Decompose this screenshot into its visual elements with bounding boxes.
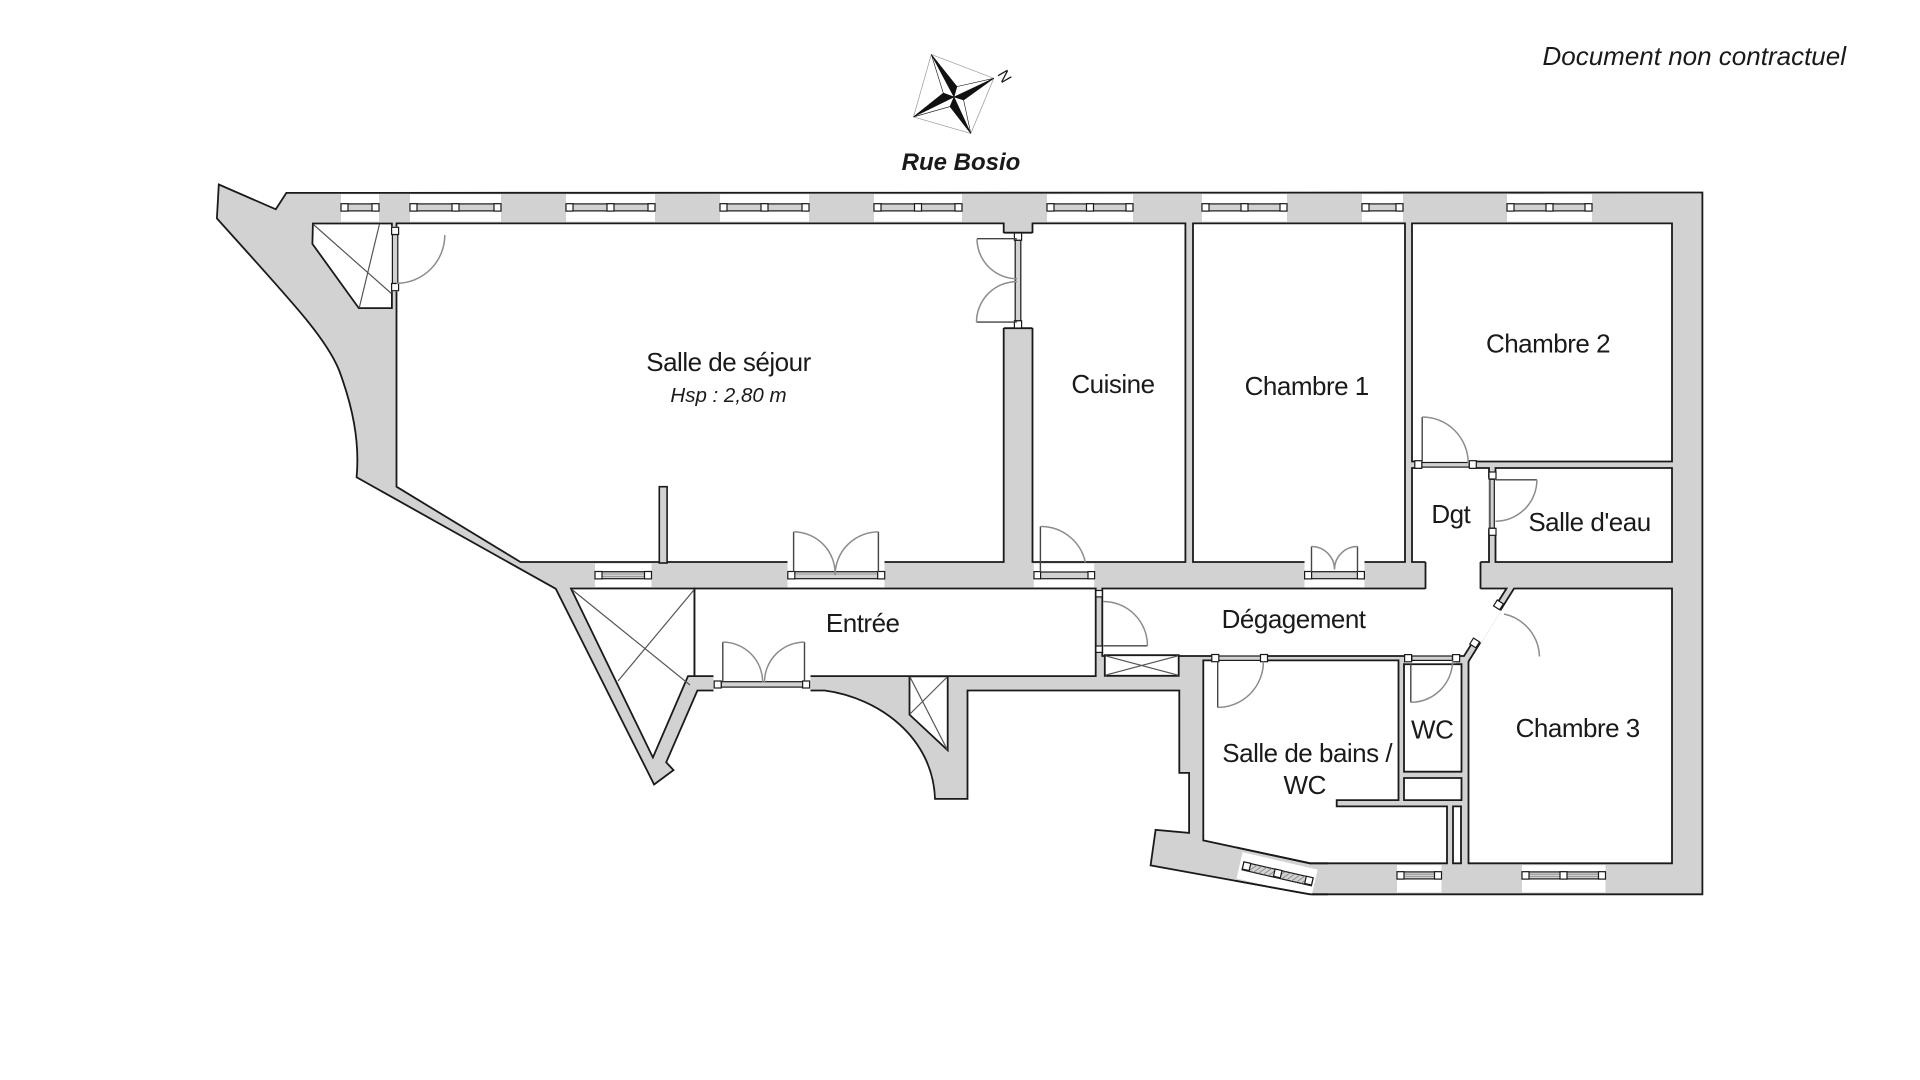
svg-text:Dgt: Dgt [1431,499,1471,529]
svg-text:Entrée: Entrée [826,608,900,638]
svg-text:WC: WC [1284,770,1326,800]
svg-text:Dégagement: Dégagement [1222,604,1367,634]
svg-text:Hsp : 2,80 m: Hsp : 2,80 m [670,384,786,407]
svg-text:Chambre 1: Chambre 1 [1245,371,1369,401]
svg-text:Chambre 3: Chambre 3 [1516,713,1640,743]
svg-text:Salle de bains /: Salle de bains / [1222,738,1393,768]
svg-text:Salle d'eau: Salle d'eau [1528,507,1650,537]
svg-text:WC: WC [1411,715,1453,745]
svg-text:Chambre 2: Chambre 2 [1486,329,1610,359]
svg-text:Document non contractuel: Document non contractuel [1542,41,1847,71]
svg-text:Cuisine: Cuisine [1071,369,1154,399]
svg-text:Rue Bosio: Rue Bosio [902,149,1021,176]
svg-text:Salle de séjour: Salle de séjour [646,347,811,377]
